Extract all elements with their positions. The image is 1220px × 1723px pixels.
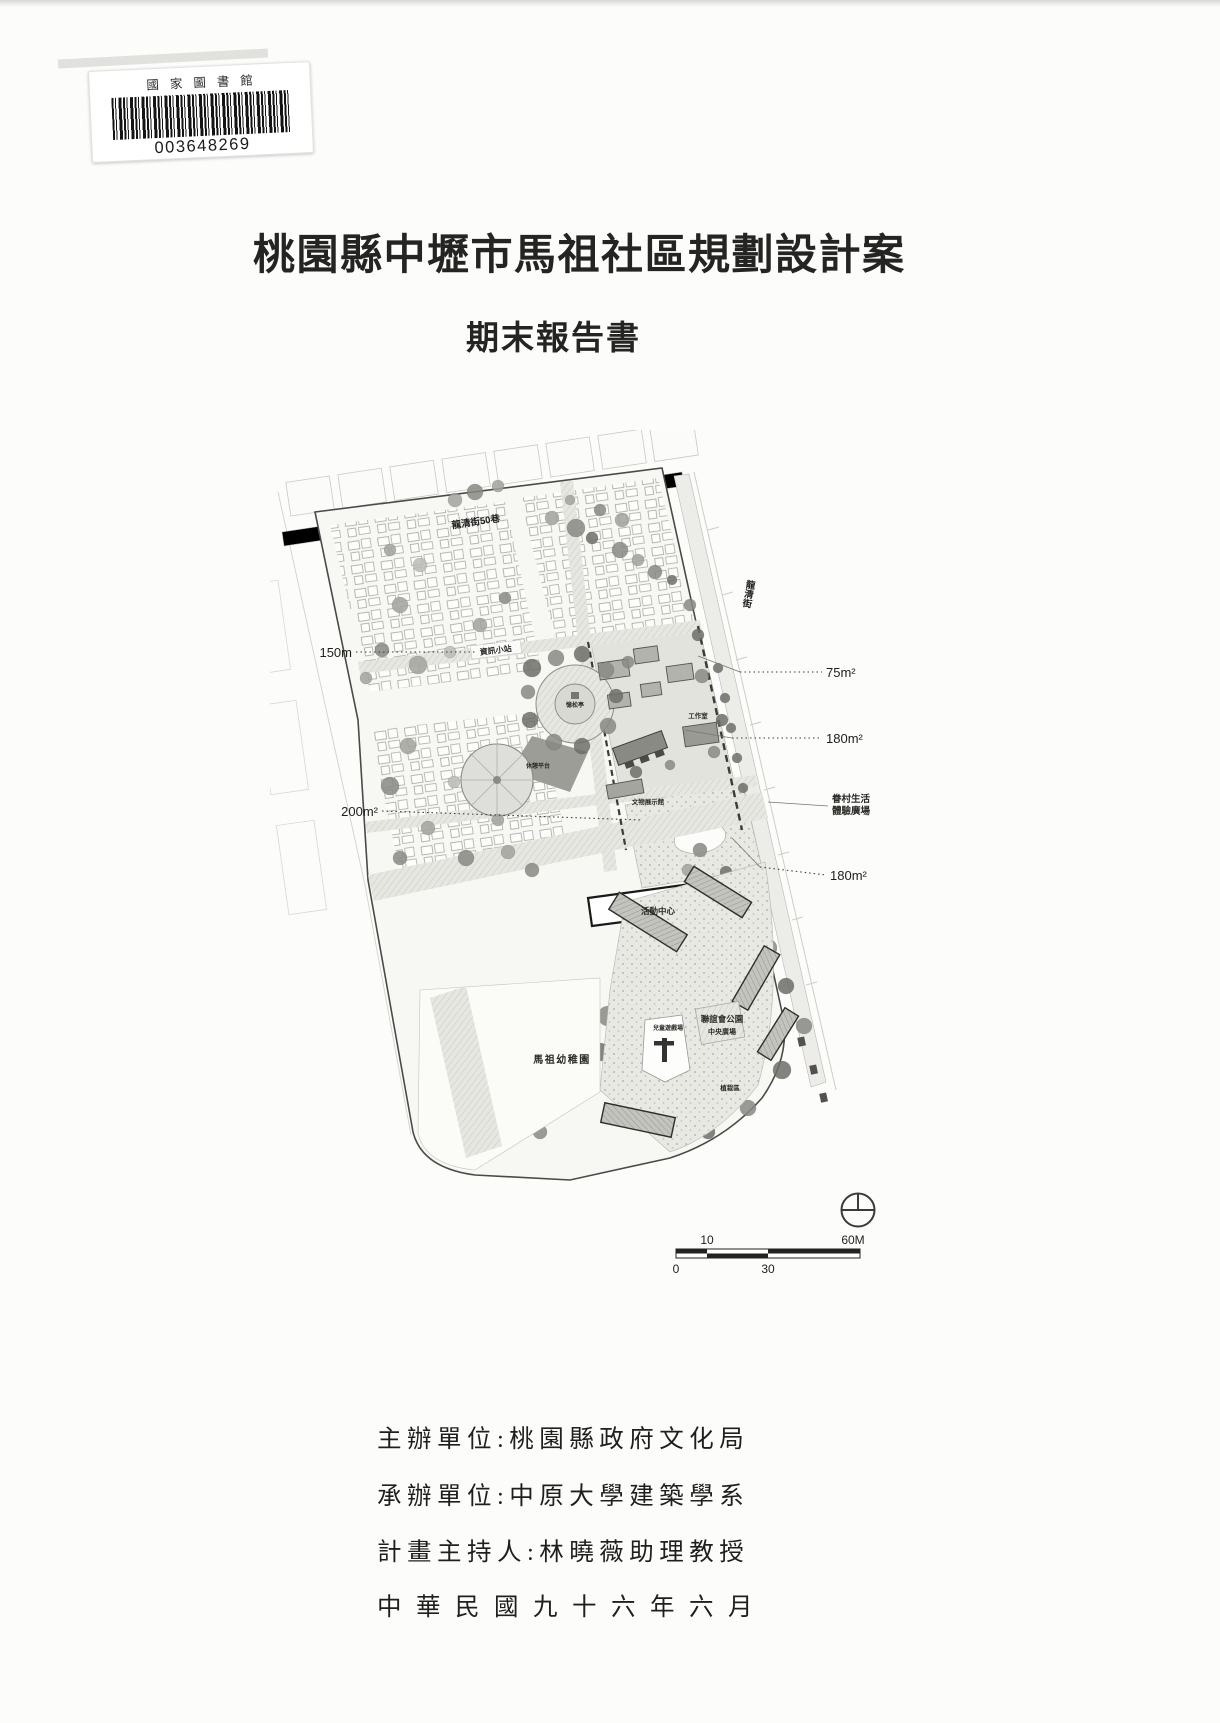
label-exhibition-hall: 文物展示館 bbox=[631, 797, 665, 806]
annotation-180m2-lower: 180m² bbox=[830, 868, 868, 883]
label-kindergarten: 馬祖幼稚園 bbox=[533, 1053, 591, 1066]
label-rest-platform: 休憩平台 bbox=[525, 762, 550, 770]
north-arrow-icon bbox=[842, 1194, 875, 1227]
round-canopy-feature bbox=[461, 744, 533, 816]
barcode-icon bbox=[111, 90, 291, 140]
annotation-200m2: 200m² bbox=[341, 804, 379, 819]
page-title: 桃園縣中壢市馬祖社區規劃設計案 bbox=[253, 221, 906, 282]
scale-60m: 60M bbox=[841, 1233, 864, 1247]
credit-undertaker: 承辦單位:中原大學建築學系 bbox=[377, 1477, 749, 1512]
label-planting-area: 植栽區 bbox=[719, 1083, 740, 1092]
site-plan-drawing: 龍清街50巷 龍清街 資訊小站 憶松亭 工作室 休憩平台 文物展示館 活動中心 … bbox=[270, 430, 910, 1290]
label-park: 聯誼會公園 bbox=[701, 1014, 744, 1024]
label-children-playground: 兒童遊戲場 bbox=[652, 1024, 683, 1032]
annotation-150m: 150m bbox=[319, 645, 352, 660]
library-barcode-sticker: 國家圖書館 003648269 bbox=[88, 61, 314, 163]
street-label-right: 龍清街 bbox=[740, 578, 758, 610]
annotation-75m2: 75m² bbox=[826, 665, 856, 680]
annotation-village-plaza-line1: 眷村生活 bbox=[831, 793, 871, 805]
scale-30: 30 bbox=[761, 1262, 775, 1276]
credit-date: 中華民國九十六年六月 bbox=[377, 1588, 767, 1623]
label-activity-center: 活動中心 bbox=[641, 906, 676, 916]
credit-principal: 計畫主持人:林曉薇助理教授 bbox=[377, 1533, 749, 1568]
credit-organizer: 主辦單位:桃園縣政府文化局 bbox=[377, 1420, 749, 1455]
scale-bar: 10 60M 0 30 bbox=[673, 1233, 865, 1276]
scan-artifact-top bbox=[0, 0, 1220, 7]
label-central-plaza: 中央廣場 bbox=[708, 1027, 736, 1036]
page-subtitle: 期末報告書 bbox=[466, 311, 641, 359]
scale-10: 10 bbox=[700, 1233, 714, 1247]
label-pavilion: 憶松亭 bbox=[565, 701, 584, 709]
label-workshop: 工作室 bbox=[688, 711, 708, 720]
annotation-village-plaza-line2: 體驗廣場 bbox=[832, 805, 871, 817]
scale-0: 0 bbox=[673, 1262, 680, 1276]
pavilion-structure bbox=[571, 692, 579, 699]
annotation-180m2-upper: 180m² bbox=[826, 731, 864, 746]
report-cover-page: 國家圖書館 003648269 桃園縣中壢市馬祖社區規劃設計案 期末報告書 bbox=[0, 0, 1220, 1723]
site-plan-figure: 龍清街50巷 龍清街 資訊小站 憶松亭 工作室 休憩平台 文物展示館 活動中心 … bbox=[270, 430, 910, 1295]
